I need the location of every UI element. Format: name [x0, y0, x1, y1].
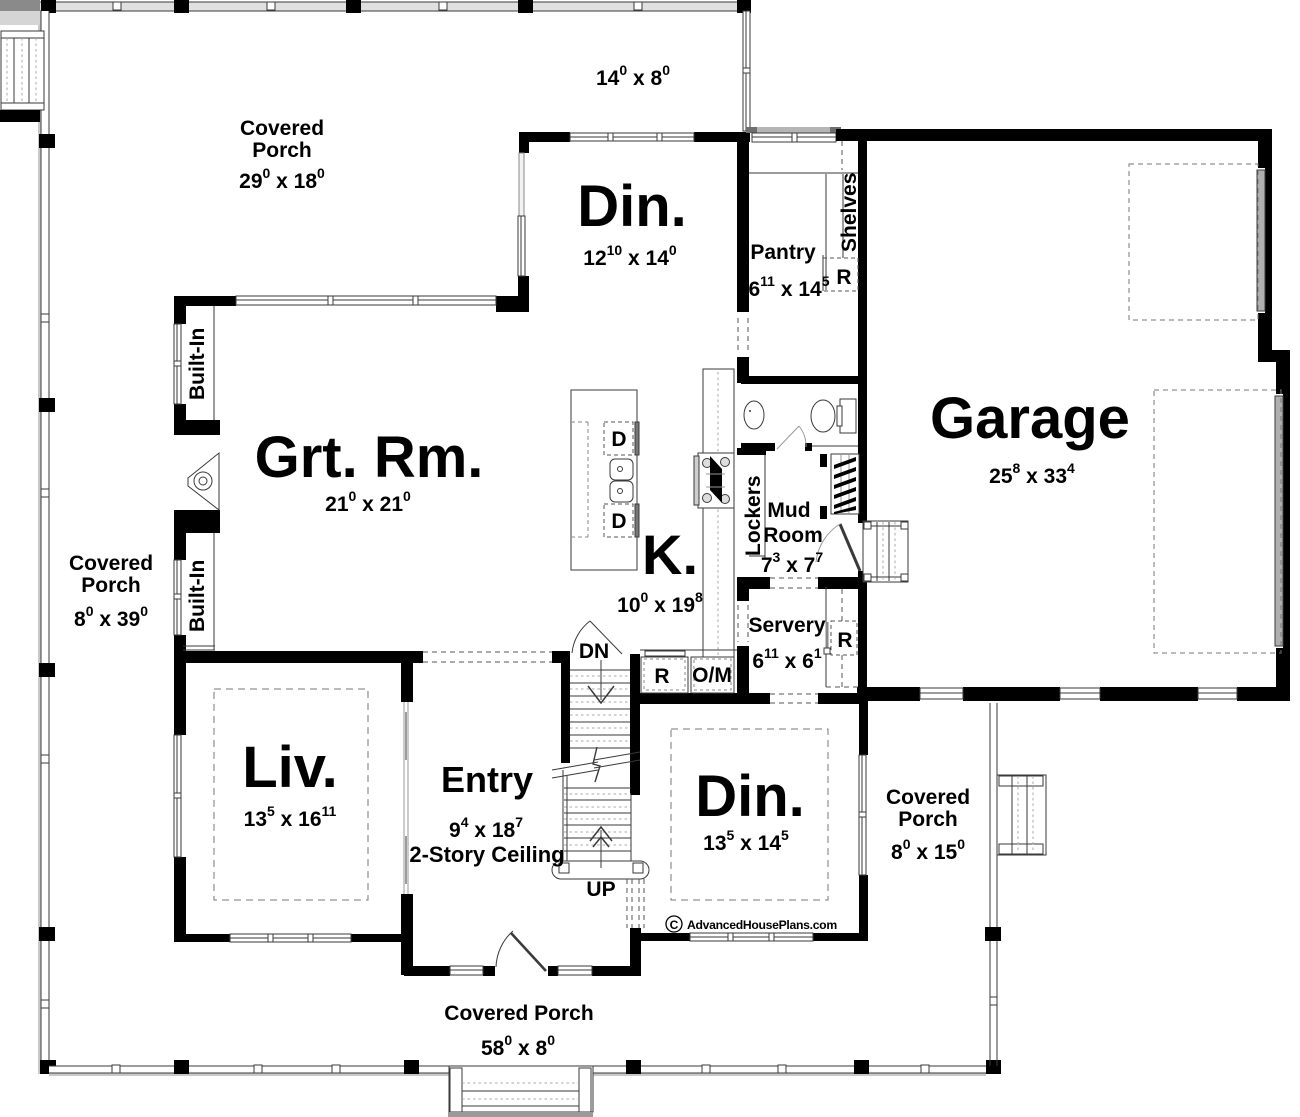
svg-text:Porch: Porch — [252, 139, 312, 162]
svg-text:1210 x 140: 1210 x 140 — [583, 242, 677, 270]
svg-text:135 x 145: 135 x 145 — [703, 827, 789, 855]
svg-text:140 x 80: 140 x 80 — [596, 62, 670, 90]
svg-text:K.: K. — [642, 523, 698, 586]
svg-text:Porch: Porch — [81, 574, 141, 597]
svg-text:94 x 187: 94 x 187 — [449, 814, 523, 842]
svg-text:Covered: Covered — [69, 552, 153, 575]
svg-text:Pantry: Pantry — [750, 241, 816, 264]
svg-text:73 x 77: 73 x 77 — [761, 549, 824, 577]
svg-text:210 x 210: 210 x 210 — [325, 488, 411, 516]
svg-text:258 x 334: 258 x 334 — [989, 460, 1075, 488]
svg-text:Built-In: Built-In — [186, 560, 209, 632]
svg-text:100 x 198: 100 x 198 — [617, 589, 703, 617]
svg-text:D: D — [611, 510, 626, 533]
svg-text:O/M: O/M — [692, 664, 732, 687]
svg-text:Grt. Rm.: Grt. Rm. — [255, 425, 484, 490]
svg-text:Shelves: Shelves — [838, 173, 861, 252]
svg-text:290 x 180: 290 x 180 — [239, 165, 325, 193]
svg-text:Covered Porch: Covered Porch — [444, 1002, 593, 1025]
svg-text:Din.: Din. — [577, 174, 687, 239]
svg-text:R: R — [836, 266, 851, 289]
svg-text:Porch: Porch — [898, 808, 958, 831]
svg-text:C: C — [670, 918, 679, 932]
svg-text:2-Story Ceiling: 2-Story Ceiling — [409, 842, 564, 867]
svg-text:UP: UP — [586, 878, 615, 901]
svg-text:80 x 390: 80 x 390 — [74, 603, 148, 631]
svg-text:Liv.: Liv. — [242, 735, 338, 800]
svg-text:Covered: Covered — [240, 117, 324, 140]
svg-text:Covered: Covered — [886, 786, 970, 809]
svg-text:R: R — [837, 629, 852, 652]
svg-text:AdvancedHousePlans.com: AdvancedHousePlans.com — [687, 918, 837, 932]
svg-text:80 x 150: 80 x 150 — [891, 836, 965, 864]
svg-text:Room: Room — [763, 524, 823, 547]
svg-text:Garage: Garage — [930, 386, 1130, 451]
svg-text:DN: DN — [579, 640, 609, 663]
svg-text:Entry: Entry — [441, 759, 533, 800]
svg-text:Mud: Mud — [767, 499, 810, 522]
svg-text:Lockers: Lockers — [742, 475, 765, 556]
svg-text:580 x 80: 580 x 80 — [481, 1032, 555, 1060]
svg-text:Servery: Servery — [748, 614, 825, 637]
svg-text:D: D — [611, 428, 626, 451]
svg-text:R: R — [654, 665, 669, 688]
svg-text:Din.: Din. — [695, 764, 805, 829]
svg-text:Built-In: Built-In — [186, 328, 209, 400]
svg-text:611 x 61: 611 x 61 — [752, 645, 822, 673]
